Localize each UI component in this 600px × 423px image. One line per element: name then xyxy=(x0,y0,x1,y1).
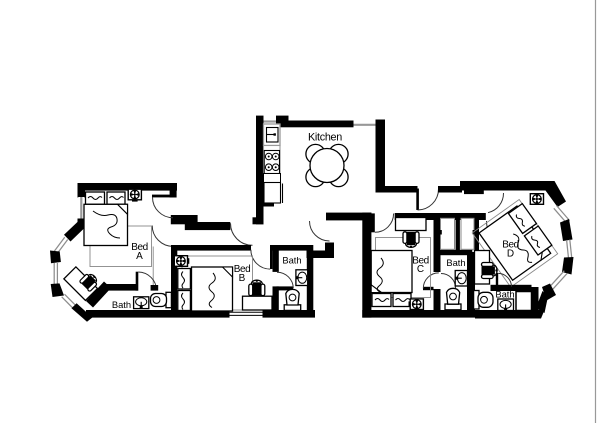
svg-text:A: A xyxy=(136,251,143,262)
svg-text:B: B xyxy=(239,273,246,284)
svg-text:Bath: Bath xyxy=(446,257,465,268)
svg-text:Kitchen: Kitchen xyxy=(308,132,342,144)
svg-text:Bath: Bath xyxy=(495,289,514,300)
svg-text:Bath: Bath xyxy=(112,299,131,310)
svg-text:D: D xyxy=(507,249,514,260)
svg-text:C: C xyxy=(417,264,424,275)
svg-text:Bath: Bath xyxy=(282,255,301,266)
